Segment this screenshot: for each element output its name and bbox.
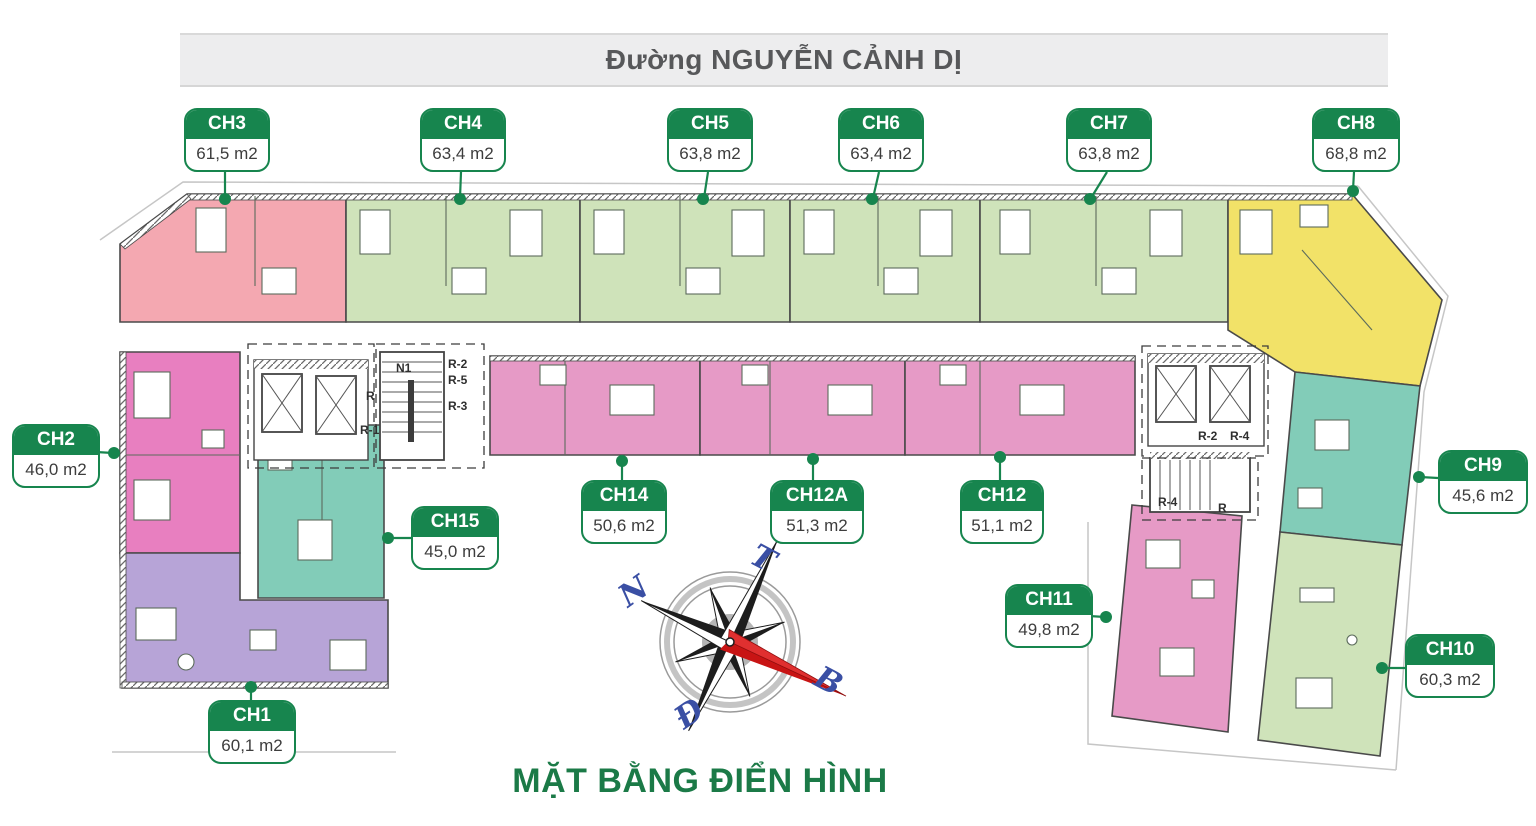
apartment-badge-ch5: CH5 63,8 m2 [667, 108, 753, 172]
apartment-area-label: 68,8 m2 [1314, 139, 1398, 170]
apartment-badge-ch3: CH3 61,5 m2 [184, 108, 270, 172]
core-label-n1: N1 [396, 361, 412, 375]
apartment-ch10-area [1258, 532, 1402, 756]
apartment-badge-ch11: CH11 49,8 m2 [1005, 584, 1093, 648]
apartment-id-label: CH12 [962, 482, 1042, 511]
apartment-badge-ch8: CH8 68,8 m2 [1312, 108, 1400, 172]
apartment-id-label: CH9 [1440, 452, 1526, 481]
core-label-r: R [366, 389, 375, 403]
apartment-id-label: CH10 [1407, 636, 1493, 665]
core-label-stair-r4: R-4 [1158, 495, 1178, 509]
core-label-r3: R-3 [448, 399, 468, 413]
right-stair-core: R-4 R [1142, 452, 1258, 520]
apartment-ch11-area [1112, 505, 1242, 732]
apartment-area-label: 50,6 m2 [583, 511, 665, 542]
apartment-badge-ch9: CH9 45,6 m2 [1438, 450, 1528, 514]
apartment-id-label: CH7 [1068, 110, 1150, 139]
apartment-badge-ch12: CH12 51,1 m2 [960, 480, 1044, 544]
apartment-ch14-area [490, 356, 700, 455]
apartment-ch12a-area [700, 356, 905, 455]
apartment-badge-ch14: CH14 50,6 m2 [581, 480, 667, 544]
apartment-badge-ch12a: CH12A 51,3 m2 [770, 480, 864, 544]
apartment-badge-ch1: CH1 60,1 m2 [208, 700, 296, 764]
apartment-id-label: CH8 [1314, 110, 1398, 139]
apartment-ch9-area [1280, 372, 1420, 545]
apartment-badge-ch2: CH2 46,0 m2 [12, 424, 100, 488]
apartment-area-label: 45,6 m2 [1440, 481, 1526, 512]
core-label-right-r4: R-4 [1230, 429, 1250, 443]
apartment-id-label: CH6 [840, 110, 922, 139]
apartment-id-label: CH12A [772, 482, 862, 511]
apartment-badge-ch6: CH6 63,4 m2 [838, 108, 924, 172]
apartment-area-label: 46,0 m2 [14, 455, 98, 486]
apartment-area-label: 63,4 m2 [422, 139, 504, 170]
plan-title: MẶT BẰNG ĐIỂN HÌNH [480, 762, 920, 801]
right-elevator-core: R-2 R-4 [1142, 346, 1268, 456]
apartment-area-label: 49,8 m2 [1007, 615, 1091, 646]
apartment-area-label: 51,1 m2 [962, 511, 1042, 542]
core-label-r5: R-5 [448, 373, 468, 387]
apartment-id-label: CH4 [422, 110, 504, 139]
apartment-id-label: CH11 [1007, 586, 1091, 615]
core-label-r1: R-1 [360, 423, 380, 437]
compass-label-south: N [611, 568, 657, 615]
left-elevator-core [248, 344, 374, 468]
apartment-id-label: CH3 [186, 110, 268, 139]
apartment-area-label: 63,8 m2 [669, 139, 751, 170]
apartment-badge-ch15: CH15 45,0 m2 [411, 506, 499, 570]
apartment-area-label: 60,1 m2 [210, 731, 294, 762]
apartment-area-label: 60,3 m2 [1407, 665, 1493, 696]
apartment-id-label: CH5 [669, 110, 751, 139]
apartment-id-label: CH1 [210, 702, 294, 731]
apartment-area-label: 45,0 m2 [413, 537, 497, 568]
apartment-id-label: CH14 [583, 482, 665, 511]
core-label-stair-r: R [1218, 501, 1227, 515]
apartment-badge-ch7: CH7 63,8 m2 [1066, 108, 1152, 172]
apartment-id-label: CH15 [413, 508, 497, 537]
apartment-badge-ch10: CH10 60,3 m2 [1405, 634, 1495, 698]
apartment-id-label: CH2 [14, 426, 98, 455]
apartment-ch3-area [120, 194, 346, 322]
apartment-area-label: 63,8 m2 [1068, 139, 1150, 170]
floorplan-page: Đường NGUYỄN CẢNH DỊ [0, 0, 1536, 826]
apartment-area-label: 51,3 m2 [772, 511, 862, 542]
core-label-right-r2: R-2 [1198, 429, 1218, 443]
compass-label-north: B [807, 659, 848, 704]
apartment-badge-ch4: CH4 63,4 m2 [420, 108, 506, 172]
core-label-r2: R-2 [448, 357, 468, 371]
apartment-area-label: 61,5 m2 [186, 139, 268, 170]
apartment-area-label: 63,4 m2 [840, 139, 922, 170]
